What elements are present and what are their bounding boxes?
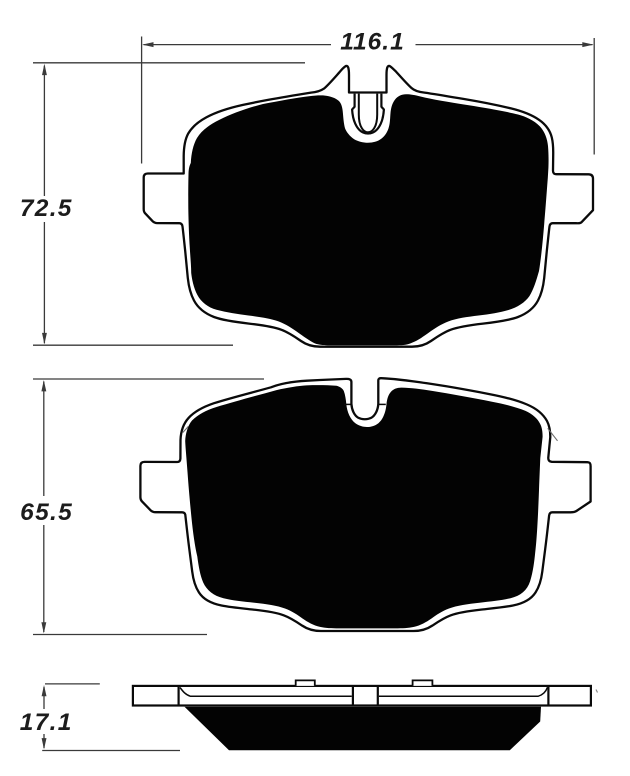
svg-text:65.5: 65.5 <box>20 499 73 526</box>
svg-text:17.1: 17.1 <box>20 709 73 736</box>
svg-text:72.5: 72.5 <box>20 195 73 222</box>
svg-text:116.1: 116.1 <box>340 28 405 55</box>
